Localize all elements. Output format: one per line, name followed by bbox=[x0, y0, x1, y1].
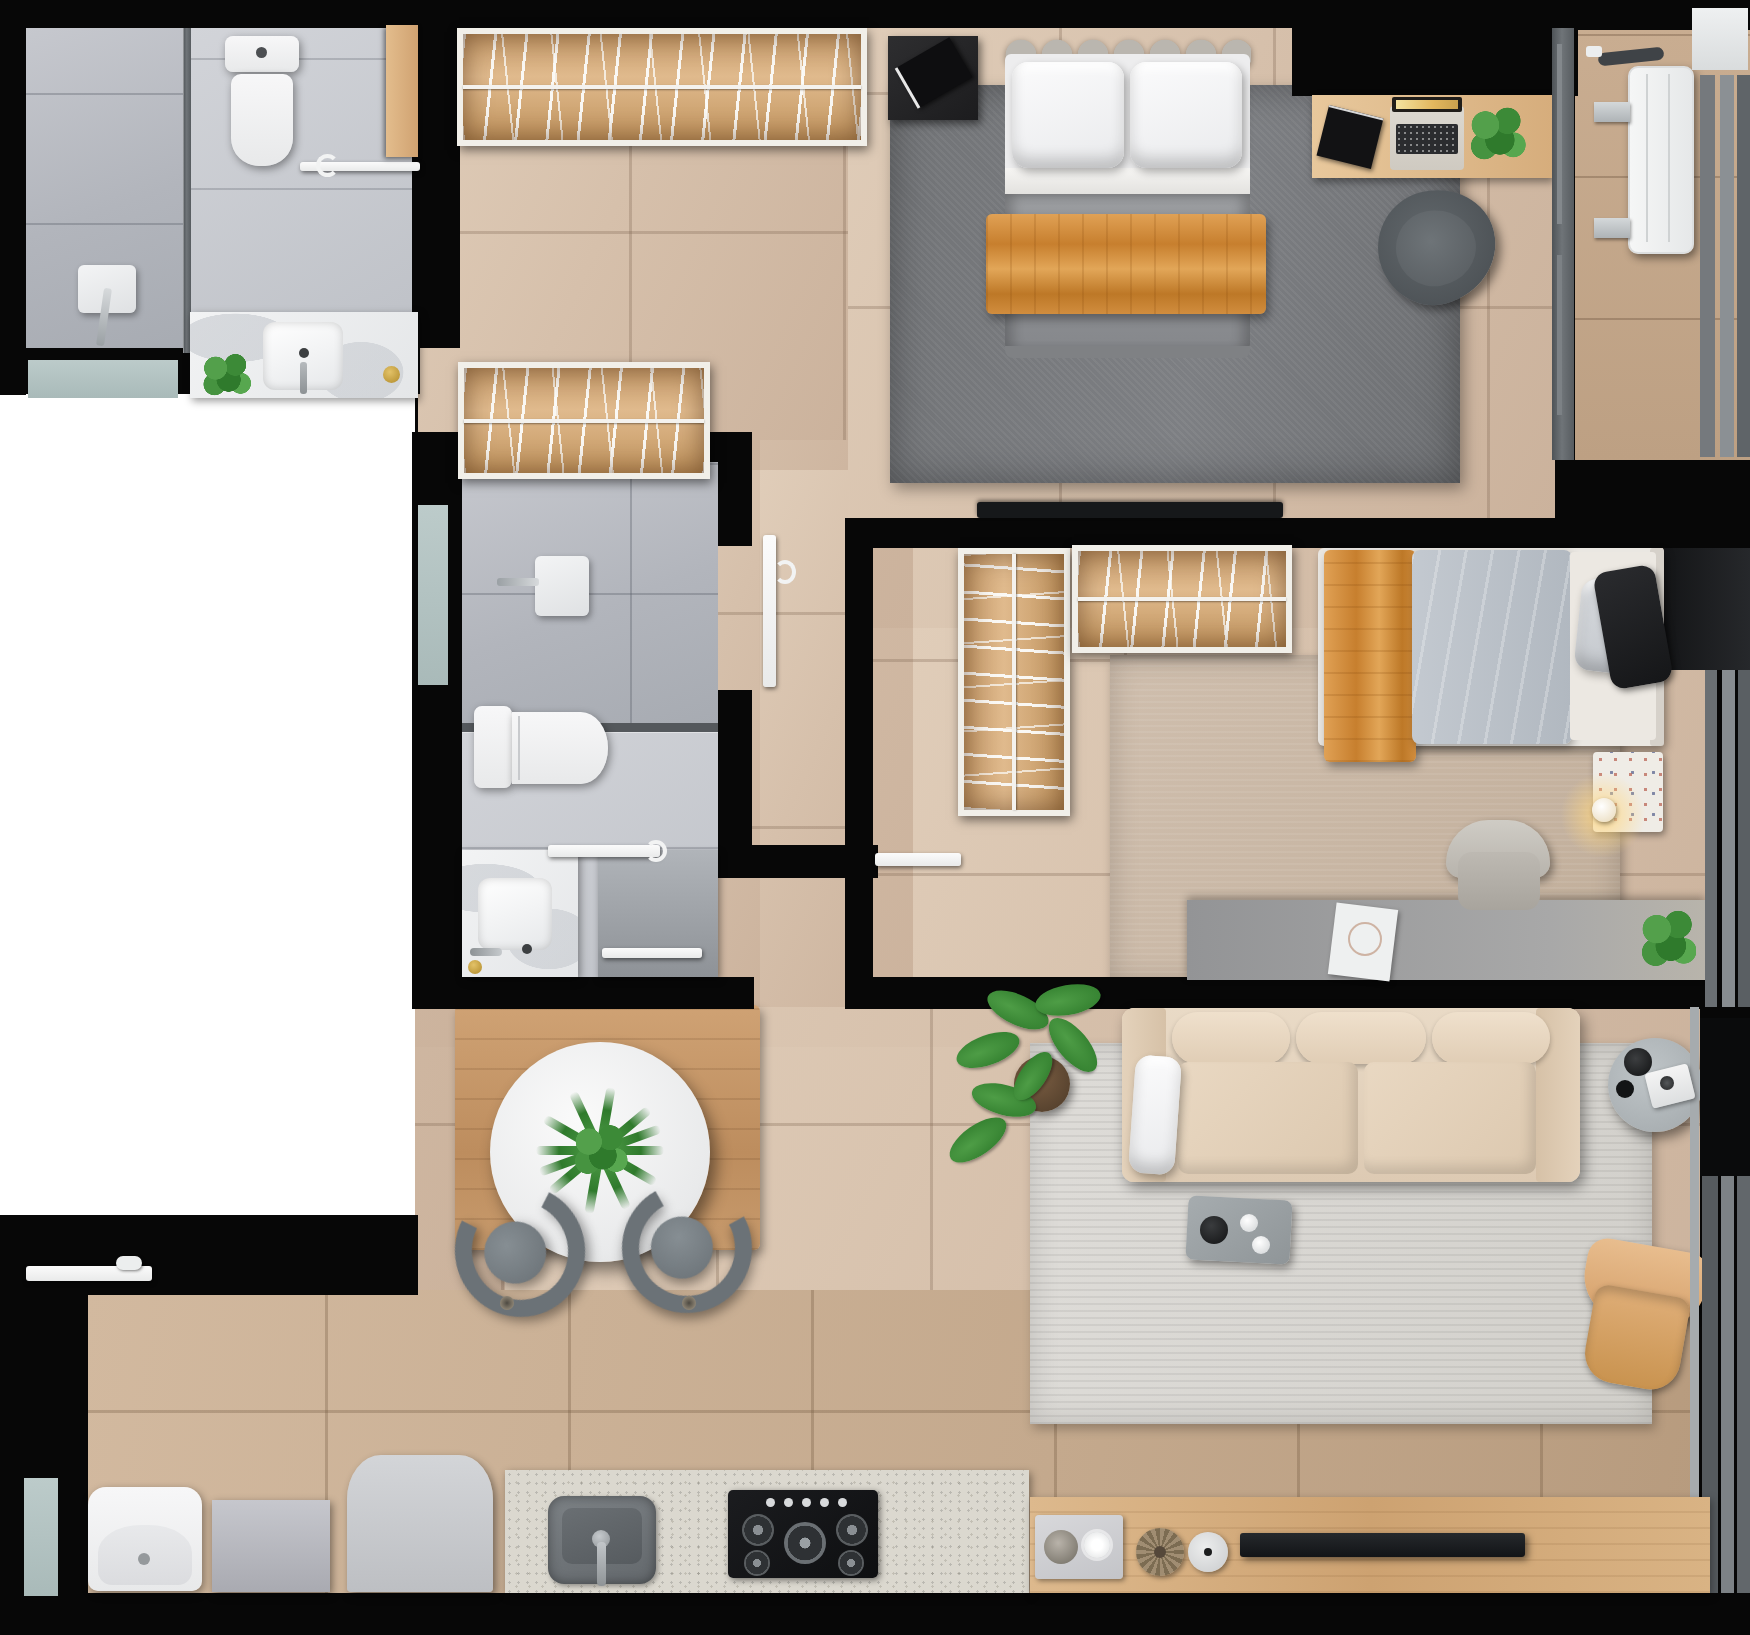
balcony-window-mullion2 bbox=[1720, 75, 1734, 457]
bathroom1-plant bbox=[200, 352, 252, 398]
bathroom1-wood-door bbox=[386, 25, 418, 157]
rosette-center bbox=[1154, 1546, 1166, 1558]
sink-faucet-spout bbox=[597, 1542, 606, 1586]
bathroom2-mixer-handle bbox=[497, 578, 539, 586]
bathroom2-toilet-seam bbox=[518, 716, 520, 780]
bathroom2-toilet-tank bbox=[474, 706, 512, 788]
bedroom2-desk bbox=[1187, 900, 1705, 980]
bathroom2-door-handle bbox=[774, 560, 796, 584]
wall-left-top bbox=[0, 0, 26, 395]
master-pillow-left bbox=[1012, 62, 1124, 168]
master-bed-foot bbox=[1005, 346, 1250, 358]
wardrobe-rail bbox=[463, 85, 861, 89]
bathroom1-window-sill bbox=[28, 360, 178, 398]
sofa-seat-cushion-left bbox=[1178, 1062, 1358, 1174]
wall-bottom-border bbox=[0, 1593, 1750, 1635]
wall-master-top-right-notch bbox=[1292, 0, 1578, 96]
bathroom2-toilet-bowl bbox=[512, 712, 608, 784]
toilet-flush-button bbox=[256, 47, 267, 58]
balcony-window-mullion3 bbox=[1737, 75, 1750, 457]
burner bbox=[836, 1514, 868, 1546]
bathroom2-door-towel-bar bbox=[602, 948, 702, 958]
floor-drain-1 bbox=[500, 1296, 514, 1310]
laptop-screen-glow bbox=[1396, 100, 1458, 109]
washer-knob bbox=[138, 1553, 150, 1565]
balcony-window-frame-top bbox=[1692, 8, 1748, 70]
partition-glass-reflection bbox=[1557, 44, 1562, 224]
bathroom2-sink-drain bbox=[522, 944, 532, 954]
dining-centerpiece-plant bbox=[530, 1082, 670, 1222]
burner bbox=[742, 1514, 774, 1546]
burner-center bbox=[784, 1522, 826, 1564]
wardrobe-rail bbox=[464, 419, 704, 423]
master-balcony-partition bbox=[1552, 28, 1574, 460]
armchair-seat bbox=[1580, 1283, 1691, 1394]
washing-machine bbox=[88, 1487, 202, 1591]
bathroom1-floor bbox=[190, 28, 418, 318]
bedroom2-duvet bbox=[1412, 550, 1572, 744]
bathroom2-screen-hook bbox=[645, 840, 667, 862]
bathroom2-faucet bbox=[470, 948, 502, 956]
kitchen-door-handle bbox=[116, 1256, 142, 1270]
camera-lens bbox=[1660, 1076, 1674, 1090]
side-table-bowl-small bbox=[1616, 1080, 1634, 1098]
ac-panel-groove-left bbox=[1646, 74, 1648, 242]
bedroom2-office-chair-seat bbox=[1458, 852, 1540, 910]
living-window-mullion3 bbox=[1737, 1176, 1750, 1593]
ac-bracket-top bbox=[1594, 102, 1630, 122]
burner bbox=[744, 1550, 770, 1576]
floor-plan bbox=[0, 0, 1750, 1635]
bedroom2-wardrobe-horizontal bbox=[1072, 545, 1292, 653]
paper-sketch bbox=[1348, 922, 1382, 956]
bedroom2-wardrobe-vertical bbox=[958, 548, 1070, 816]
master-tv bbox=[977, 502, 1283, 518]
cooktop-knob bbox=[802, 1498, 811, 1507]
wall-bathroom2-bottom bbox=[412, 977, 754, 1009]
outside-area bbox=[0, 392, 415, 1215]
sofa-back-cushion-3 bbox=[1432, 1012, 1550, 1064]
master-pillow-right bbox=[1130, 62, 1242, 168]
wardrobe-rail bbox=[1012, 554, 1016, 810]
floor-drain-2 bbox=[682, 1296, 696, 1310]
sofa-back-cushion-1 bbox=[1172, 1012, 1290, 1064]
living-window-black-block bbox=[1700, 1018, 1750, 1176]
bathroom2-shower-floor bbox=[462, 462, 718, 723]
bedroom2-orange-throw bbox=[1324, 550, 1416, 762]
wardrobe-rail bbox=[1078, 597, 1286, 601]
master-sheet-fold bbox=[1005, 168, 1250, 194]
bedroom2-door-leaf bbox=[875, 853, 961, 866]
bathroom2-sink bbox=[478, 878, 552, 950]
master-orange-throw bbox=[986, 214, 1266, 314]
bathroom1-sink-drain bbox=[299, 348, 309, 358]
plant-leaf bbox=[1006, 1046, 1059, 1107]
bedroom2-window-mullion1 bbox=[1705, 670, 1717, 1007]
laundry-box bbox=[212, 1500, 330, 1592]
wall-bathroom2-right-lower bbox=[718, 690, 752, 848]
wall-balcony-bottom bbox=[1555, 460, 1750, 548]
sofa-seat-cushion-right bbox=[1364, 1062, 1536, 1174]
living-window-mullion2 bbox=[1721, 1176, 1734, 1593]
hall-wardrobe-upper bbox=[457, 28, 867, 146]
cooktop-knob bbox=[766, 1498, 775, 1507]
vase-mouth bbox=[1204, 1548, 1212, 1556]
gas-cooktop bbox=[728, 1490, 878, 1578]
plant-center bbox=[572, 1122, 628, 1178]
bathroom2-screen-bar bbox=[548, 845, 660, 857]
wall-kitchen-entry bbox=[0, 1215, 418, 1295]
burner bbox=[838, 1550, 864, 1576]
kitchen-tv bbox=[1240, 1533, 1525, 1557]
bathroom1-glass-partition bbox=[183, 28, 191, 353]
tray-bowl bbox=[1044, 1530, 1078, 1564]
wall-bedroom2-left bbox=[845, 548, 873, 1009]
master-desk-plant bbox=[1468, 104, 1526, 164]
bathroom2-gold-dish bbox=[468, 960, 482, 974]
balcony-window-mullion1 bbox=[1700, 75, 1715, 457]
bedroom2-table-lamp bbox=[1592, 798, 1616, 822]
bathroom1-faucet bbox=[300, 362, 307, 394]
living-fiddle-plant bbox=[945, 975, 1145, 1175]
wall-bathroom2-right-upper bbox=[718, 432, 752, 546]
tray-cup-2 bbox=[1252, 1236, 1270, 1254]
ac-condenser-unit bbox=[1628, 66, 1694, 254]
ac-hose-cap bbox=[1586, 46, 1602, 57]
bathroom1-toilet-bowl bbox=[231, 74, 293, 166]
tray-flower bbox=[1084, 1532, 1110, 1558]
refrigerator bbox=[347, 1455, 493, 1592]
plant-leaf bbox=[952, 1025, 1024, 1076]
cooktop-knob bbox=[820, 1498, 829, 1507]
bathroom1-gold-dish bbox=[383, 366, 400, 383]
chair-seat bbox=[476, 1213, 554, 1291]
wall-bathroom1-right bbox=[412, 0, 460, 348]
cooktop-knob bbox=[784, 1498, 793, 1507]
hall-wardrobe-lower bbox=[458, 362, 710, 479]
tray-remote bbox=[1200, 1216, 1228, 1244]
cooktop-knob bbox=[838, 1498, 847, 1507]
bedroom2-desk-plant bbox=[1640, 906, 1696, 972]
kitchen-window bbox=[24, 1478, 58, 1596]
towel-bar-hook bbox=[316, 154, 339, 177]
sofa-back-cushion-2 bbox=[1296, 1012, 1426, 1064]
laptop-keyboard bbox=[1396, 124, 1458, 154]
partition-glass-reflection2 bbox=[1557, 255, 1562, 415]
bathroom2-door-leaf bbox=[763, 535, 776, 687]
bathroom2-shower-mixer bbox=[535, 556, 589, 616]
wall-bedroom2-window-corner bbox=[1663, 548, 1750, 670]
tray-cup-1 bbox=[1240, 1214, 1258, 1232]
sofa-armrest-pillow bbox=[1128, 1055, 1182, 1176]
ac-bracket-bottom bbox=[1594, 218, 1630, 238]
ac-panel-groove-right bbox=[1668, 74, 1670, 242]
bedroom2-window-mullion3 bbox=[1738, 670, 1750, 1007]
plant-leaf bbox=[942, 1109, 1013, 1171]
bathroom2-window bbox=[418, 505, 448, 685]
bedroom2-window-mullion2 bbox=[1722, 670, 1735, 1007]
